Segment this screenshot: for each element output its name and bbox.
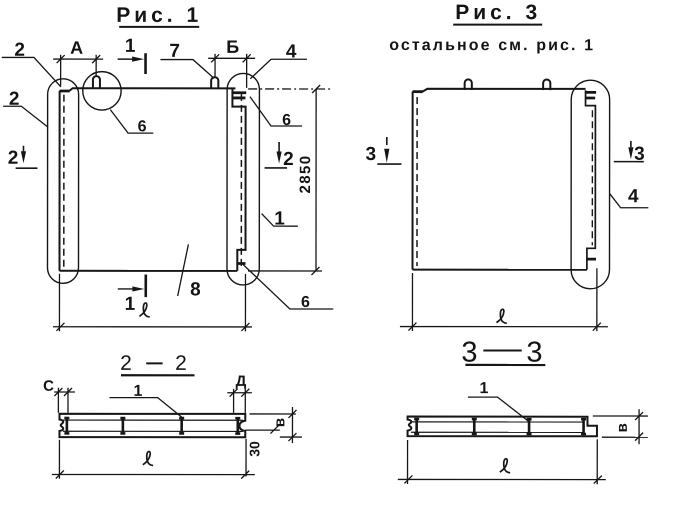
svg-text:остальное см. рис. 1: остальное см. рис. 1 [389,37,595,54]
svg-text:3: 3 [365,144,376,165]
svg-text:А: А [70,38,83,58]
svg-text:1: 1 [479,380,488,397]
svg-text:Рис. 1: Рис. 1 [116,4,202,27]
svg-text:Рис. 3: Рис. 3 [455,1,541,24]
svg-text:Б: Б [226,37,239,57]
svg-text:2: 2 [175,352,187,375]
svg-text:30: 30 [246,441,262,457]
svg-text:2: 2 [120,352,132,375]
svg-text:4: 4 [628,186,639,207]
svg-text:2: 2 [14,40,25,61]
svg-text:6: 6 [282,112,291,129]
svg-text:6: 6 [138,118,147,135]
svg-text:в: в [614,423,631,432]
svg-text:7: 7 [169,41,180,62]
svg-text:С: С [43,378,54,395]
svg-text:4: 4 [286,41,297,62]
svg-text:6: 6 [301,294,310,311]
svg-text:в: в [271,418,288,427]
svg-text:1: 1 [125,294,136,315]
svg-text:2: 2 [9,89,20,110]
svg-text:2: 2 [8,148,19,169]
svg-text:1: 1 [133,383,142,400]
svg-text:2: 2 [283,149,294,170]
svg-text:3: 3 [634,144,645,165]
svg-text:1: 1 [125,36,136,57]
svg-text:Д: Д [236,373,247,390]
svg-text:2850: 2850 [297,154,314,193]
svg-text:8: 8 [190,279,201,300]
svg-text:1: 1 [274,208,285,229]
